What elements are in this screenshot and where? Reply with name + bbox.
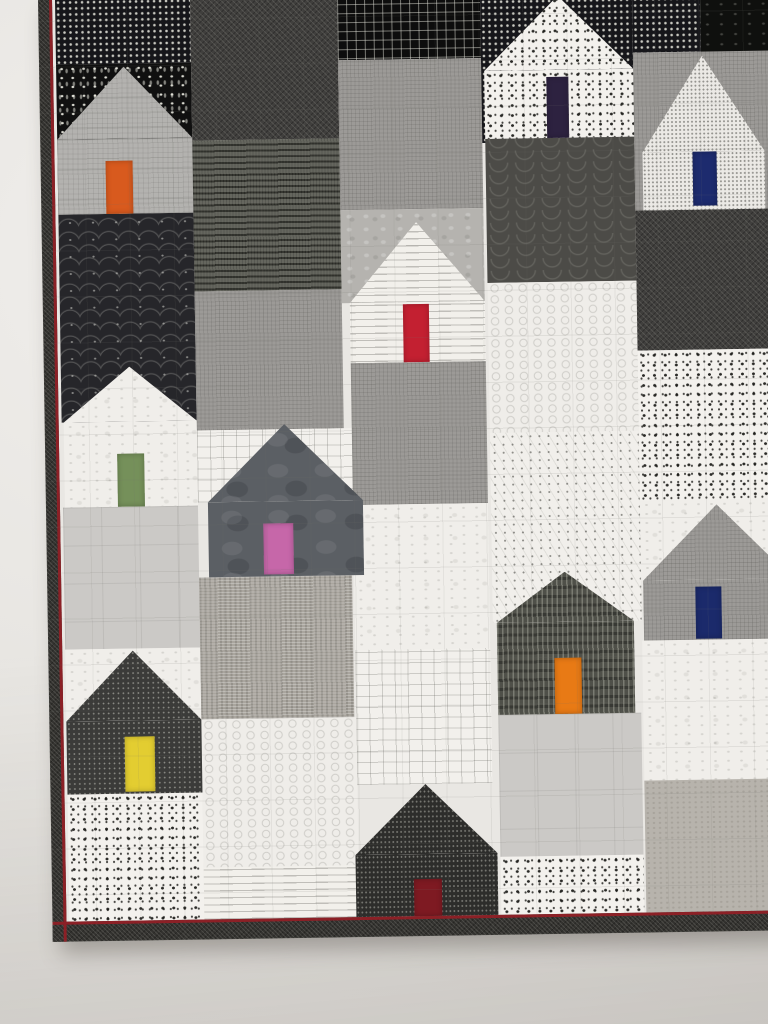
patch-gray-linen [338, 58, 483, 210]
house-1-top-left [56, 66, 193, 215]
patch-gray-linen-square [195, 289, 344, 430]
patch-gray-linen-square [351, 361, 488, 505]
patch-white-text-print [204, 865, 360, 919]
house-4-roof [63, 366, 197, 423]
patch-light-gray-square [63, 506, 200, 650]
patch-white-grunge [353, 503, 490, 650]
house-6-door-pink [263, 523, 294, 574]
patch-dark-dash [192, 138, 341, 291]
patch-gray-taupe [644, 778, 768, 912]
house-10-door-orange [554, 658, 582, 714]
house-7-door-navy [695, 586, 722, 638]
patch-gray-static [199, 575, 354, 719]
house-3-top-right [641, 55, 765, 211]
house-6-center-middle [207, 423, 364, 577]
patch-dark-arcs [485, 137, 636, 283]
house-9-door-dark-red [414, 879, 443, 916]
house-10-bottom-middle [496, 571, 635, 715]
patch-dark-weave [190, 0, 339, 141]
house-8-bottom-left [65, 650, 202, 795]
house-7-roof [642, 503, 768, 580]
house-2-roof [483, 0, 633, 71]
house-10-roof [496, 571, 634, 623]
house-4-door-green [117, 453, 145, 506]
patch-dark-weave [635, 208, 768, 350]
patch-light-gray [498, 713, 643, 857]
patch-white-swirl [488, 281, 639, 433]
photo-of-quilt-on-wall: { "scene": { "description": "Photograph … [0, 0, 768, 1024]
patch-white-swirl [201, 717, 358, 867]
house-1-door-orange [106, 161, 134, 214]
house-9-roof [354, 783, 497, 855]
house-4-middle-left [63, 366, 198, 508]
patch-white-grunge [642, 638, 768, 780]
patch-white-black-dots [67, 793, 204, 922]
house-6-roof [207, 423, 363, 502]
patch-black-grid [337, 0, 481, 60]
patch-white-black-dots [638, 348, 768, 500]
house-3-roof [641, 55, 764, 153]
house-1-roof [56, 66, 192, 140]
house-3-door-navy [692, 151, 717, 205]
patch-white-square-doodles [355, 648, 492, 785]
house-5-roof [349, 221, 485, 303]
patch-black-dots [55, 0, 191, 65]
patch-black-grunge [700, 0, 768, 55]
patch-white-black-dots [501, 855, 645, 915]
house-5-door-red [403, 304, 430, 362]
house-2-door-plum [546, 77, 569, 138]
quilt [38, 0, 768, 942]
house-5-center [349, 221, 486, 363]
patch-black-dots [632, 0, 701, 53]
house-8-roof [65, 650, 201, 722]
house-8-door-yellow [125, 736, 156, 791]
house-2-top-center [483, 0, 634, 139]
house-7-middle-right [642, 503, 768, 640]
house-9-bottom-center [354, 783, 498, 917]
